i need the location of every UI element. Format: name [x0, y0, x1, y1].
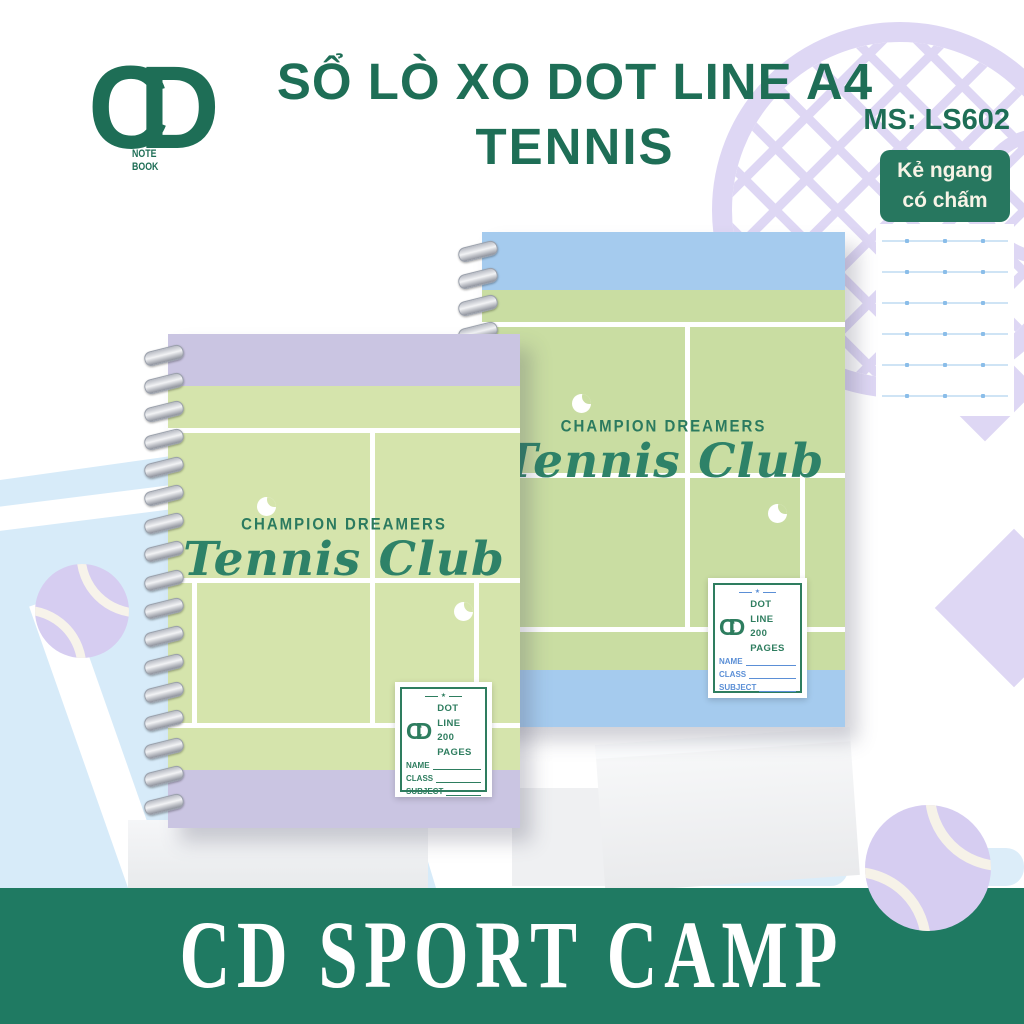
spiral-ring	[143, 484, 185, 508]
subject-field: SUBJECT	[406, 787, 481, 796]
spiral-ring	[143, 764, 185, 788]
spiral-ring	[143, 400, 185, 424]
product-code: MS: LS602	[710, 104, 1010, 137]
spiral-ring	[143, 652, 185, 676]
small-tennis-ball-icon	[768, 504, 787, 523]
logo-book-line: BOOK	[132, 161, 158, 174]
subject-field: SUBJECT	[719, 683, 796, 692]
small-tennis-ball-icon	[257, 497, 276, 516]
spiral-ring	[457, 239, 499, 263]
court-line	[482, 322, 845, 327]
spiral-ring	[143, 596, 185, 620]
write-in-line	[436, 774, 481, 783]
write-in-line	[749, 670, 796, 679]
label-spec-line2: 200 PAGES	[750, 627, 796, 656]
spiral-ring	[143, 343, 185, 367]
logo-notebook-text: NOTE BOOK	[132, 148, 158, 173]
class-field-label: CLASS	[719, 670, 746, 679]
spiral-ring	[143, 568, 185, 592]
dot-line-rule	[882, 364, 1008, 366]
write-in-line	[759, 683, 796, 692]
dot-line-rule	[882, 395, 1008, 397]
court-line	[168, 428, 520, 433]
court-side-line	[192, 583, 197, 723]
cover-label: CD SPORT CAMP ★ CD DOT LINE 200 PAGES NA…	[708, 578, 807, 698]
small-tennis-ball-icon	[572, 394, 591, 413]
label-logo-row: CD DOT LINE 200 PAGES	[719, 598, 796, 657]
cover-club-name: Tennis Club	[168, 532, 520, 587]
cover-label-frame: CD SPORT CAMP ★ CD DOT LINE 200 PAGES NA…	[713, 583, 802, 693]
footer-brand-text: CD SPORT CAMP	[180, 901, 845, 1012]
ruling-style-badge: Kẻ ngang có chấm	[880, 150, 1010, 222]
name-field-label: NAME	[406, 761, 430, 770]
subject-field-label: SUBJECT	[406, 787, 443, 796]
cover-club-name: Tennis Club	[482, 434, 845, 489]
spiral-ring	[143, 512, 185, 536]
cover-label-frame: CD SPORT CAMP ★ CD DOT LINE 200 PAGES NA…	[400, 687, 487, 792]
label-divider: ★	[425, 693, 462, 699]
label-spec-line1: DOT LINE	[750, 598, 796, 627]
dot-line-rule	[882, 271, 1008, 273]
label-divider: ★	[739, 589, 776, 595]
class-field-label: CLASS	[406, 774, 433, 783]
label-fields: NAME CLASS SUBJECT	[406, 761, 481, 796]
cover-label: CD SPORT CAMP ★ CD DOT LINE 200 PAGES NA…	[395, 682, 492, 797]
badge-line2: có chấm	[902, 186, 987, 216]
spiral-ring	[143, 736, 185, 760]
mini-cd-logo: CD	[406, 720, 433, 743]
label-fields: NAME CLASS SUBJECT	[719, 657, 796, 692]
dot-line-ruling-preview	[876, 224, 1014, 416]
spiral-ring	[143, 456, 185, 480]
tennis-ball-icon	[862, 802, 994, 934]
spiral-binding	[458, 244, 498, 340]
spiral-ring	[143, 708, 185, 732]
display-pedestal	[128, 820, 428, 888]
name-field: NAME	[719, 657, 796, 666]
label-spec-line2: 200 PAGES	[437, 731, 481, 760]
spiral-ring	[143, 540, 185, 564]
class-field: CLASS	[719, 670, 796, 679]
product-title-line1: SỔ LÒ XO DOT LINE A4	[230, 52, 920, 111]
name-field: NAME	[406, 761, 481, 770]
class-field: CLASS	[406, 774, 481, 783]
badge-line1: Kẻ ngang	[897, 156, 993, 186]
small-tennis-ball-icon	[454, 602, 473, 621]
label-specs: DOT LINE 200 PAGES	[750, 598, 796, 657]
display-pedestal	[595, 727, 860, 892]
spiral-binding	[144, 348, 184, 812]
tennis-ball-icon	[34, 563, 130, 659]
logo-note-line: NOTE	[132, 148, 158, 161]
cover-top-band	[168, 334, 520, 386]
notebook-blue-trim: CHAMPION DREAMERS Tennis Club CD SPORT C…	[482, 232, 845, 727]
dot-line-rule	[882, 302, 1008, 304]
spiral-ring	[143, 680, 185, 704]
write-in-line	[446, 787, 481, 796]
spiral-ring	[143, 624, 185, 648]
label-specs: DOT LINE 200 PAGES	[437, 702, 481, 761]
write-in-line	[433, 761, 481, 770]
net-diamond-decoration	[935, 529, 1024, 687]
name-field-label: NAME	[719, 657, 743, 666]
cover-top-band	[482, 232, 845, 290]
spiral-ring	[457, 266, 499, 290]
product-banner: CD NOTE BOOK SỔ LÒ XO DOT LINE A4 TENNIS…	[0, 0, 1024, 1024]
subject-field-label: SUBJECT	[719, 683, 756, 692]
write-in-line	[746, 657, 796, 666]
mini-cd-logo: CD	[719, 616, 746, 639]
label-spec-line1: DOT LINE	[437, 702, 481, 731]
dot-line-rule	[882, 240, 1008, 242]
notebook-lavender-trim: CHAMPION DREAMERS Tennis Club CD SPORT C…	[168, 334, 520, 828]
spiral-ring	[457, 293, 499, 317]
cd-notebook-logo: CD NOTE BOOK	[88, 52, 248, 202]
spiral-ring	[143, 428, 185, 452]
dot-line-rule	[882, 333, 1008, 335]
spiral-ring	[143, 371, 185, 395]
label-logo-row: CD DOT LINE 200 PAGES	[406, 702, 481, 761]
